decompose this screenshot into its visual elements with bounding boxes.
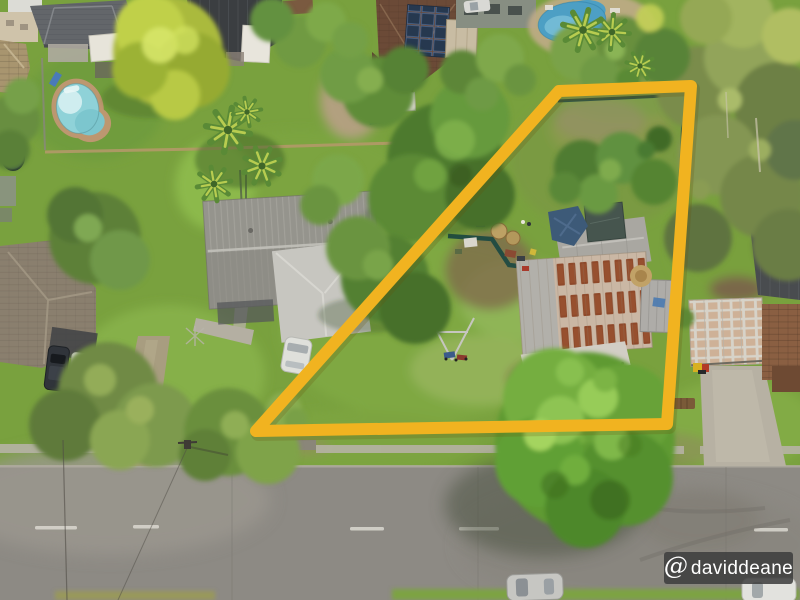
blue-item [652, 297, 665, 308]
porch-shadow [217, 299, 274, 324]
aerial-photo-svg [0, 0, 800, 600]
checker-roof-shed-right [689, 298, 764, 367]
brown-tile-house-right [762, 304, 800, 392]
straw-round-item-center [635, 270, 647, 282]
aerial-photo: @ daviddeane [0, 0, 800, 600]
yellow-green-tree [102, 0, 230, 120]
watermark: @ daviddeane [664, 552, 793, 584]
watermark-text: daviddeane [691, 559, 793, 578]
watermark-logo-at-icon: @ [664, 554, 688, 578]
silver-car-bottom [507, 573, 564, 600]
